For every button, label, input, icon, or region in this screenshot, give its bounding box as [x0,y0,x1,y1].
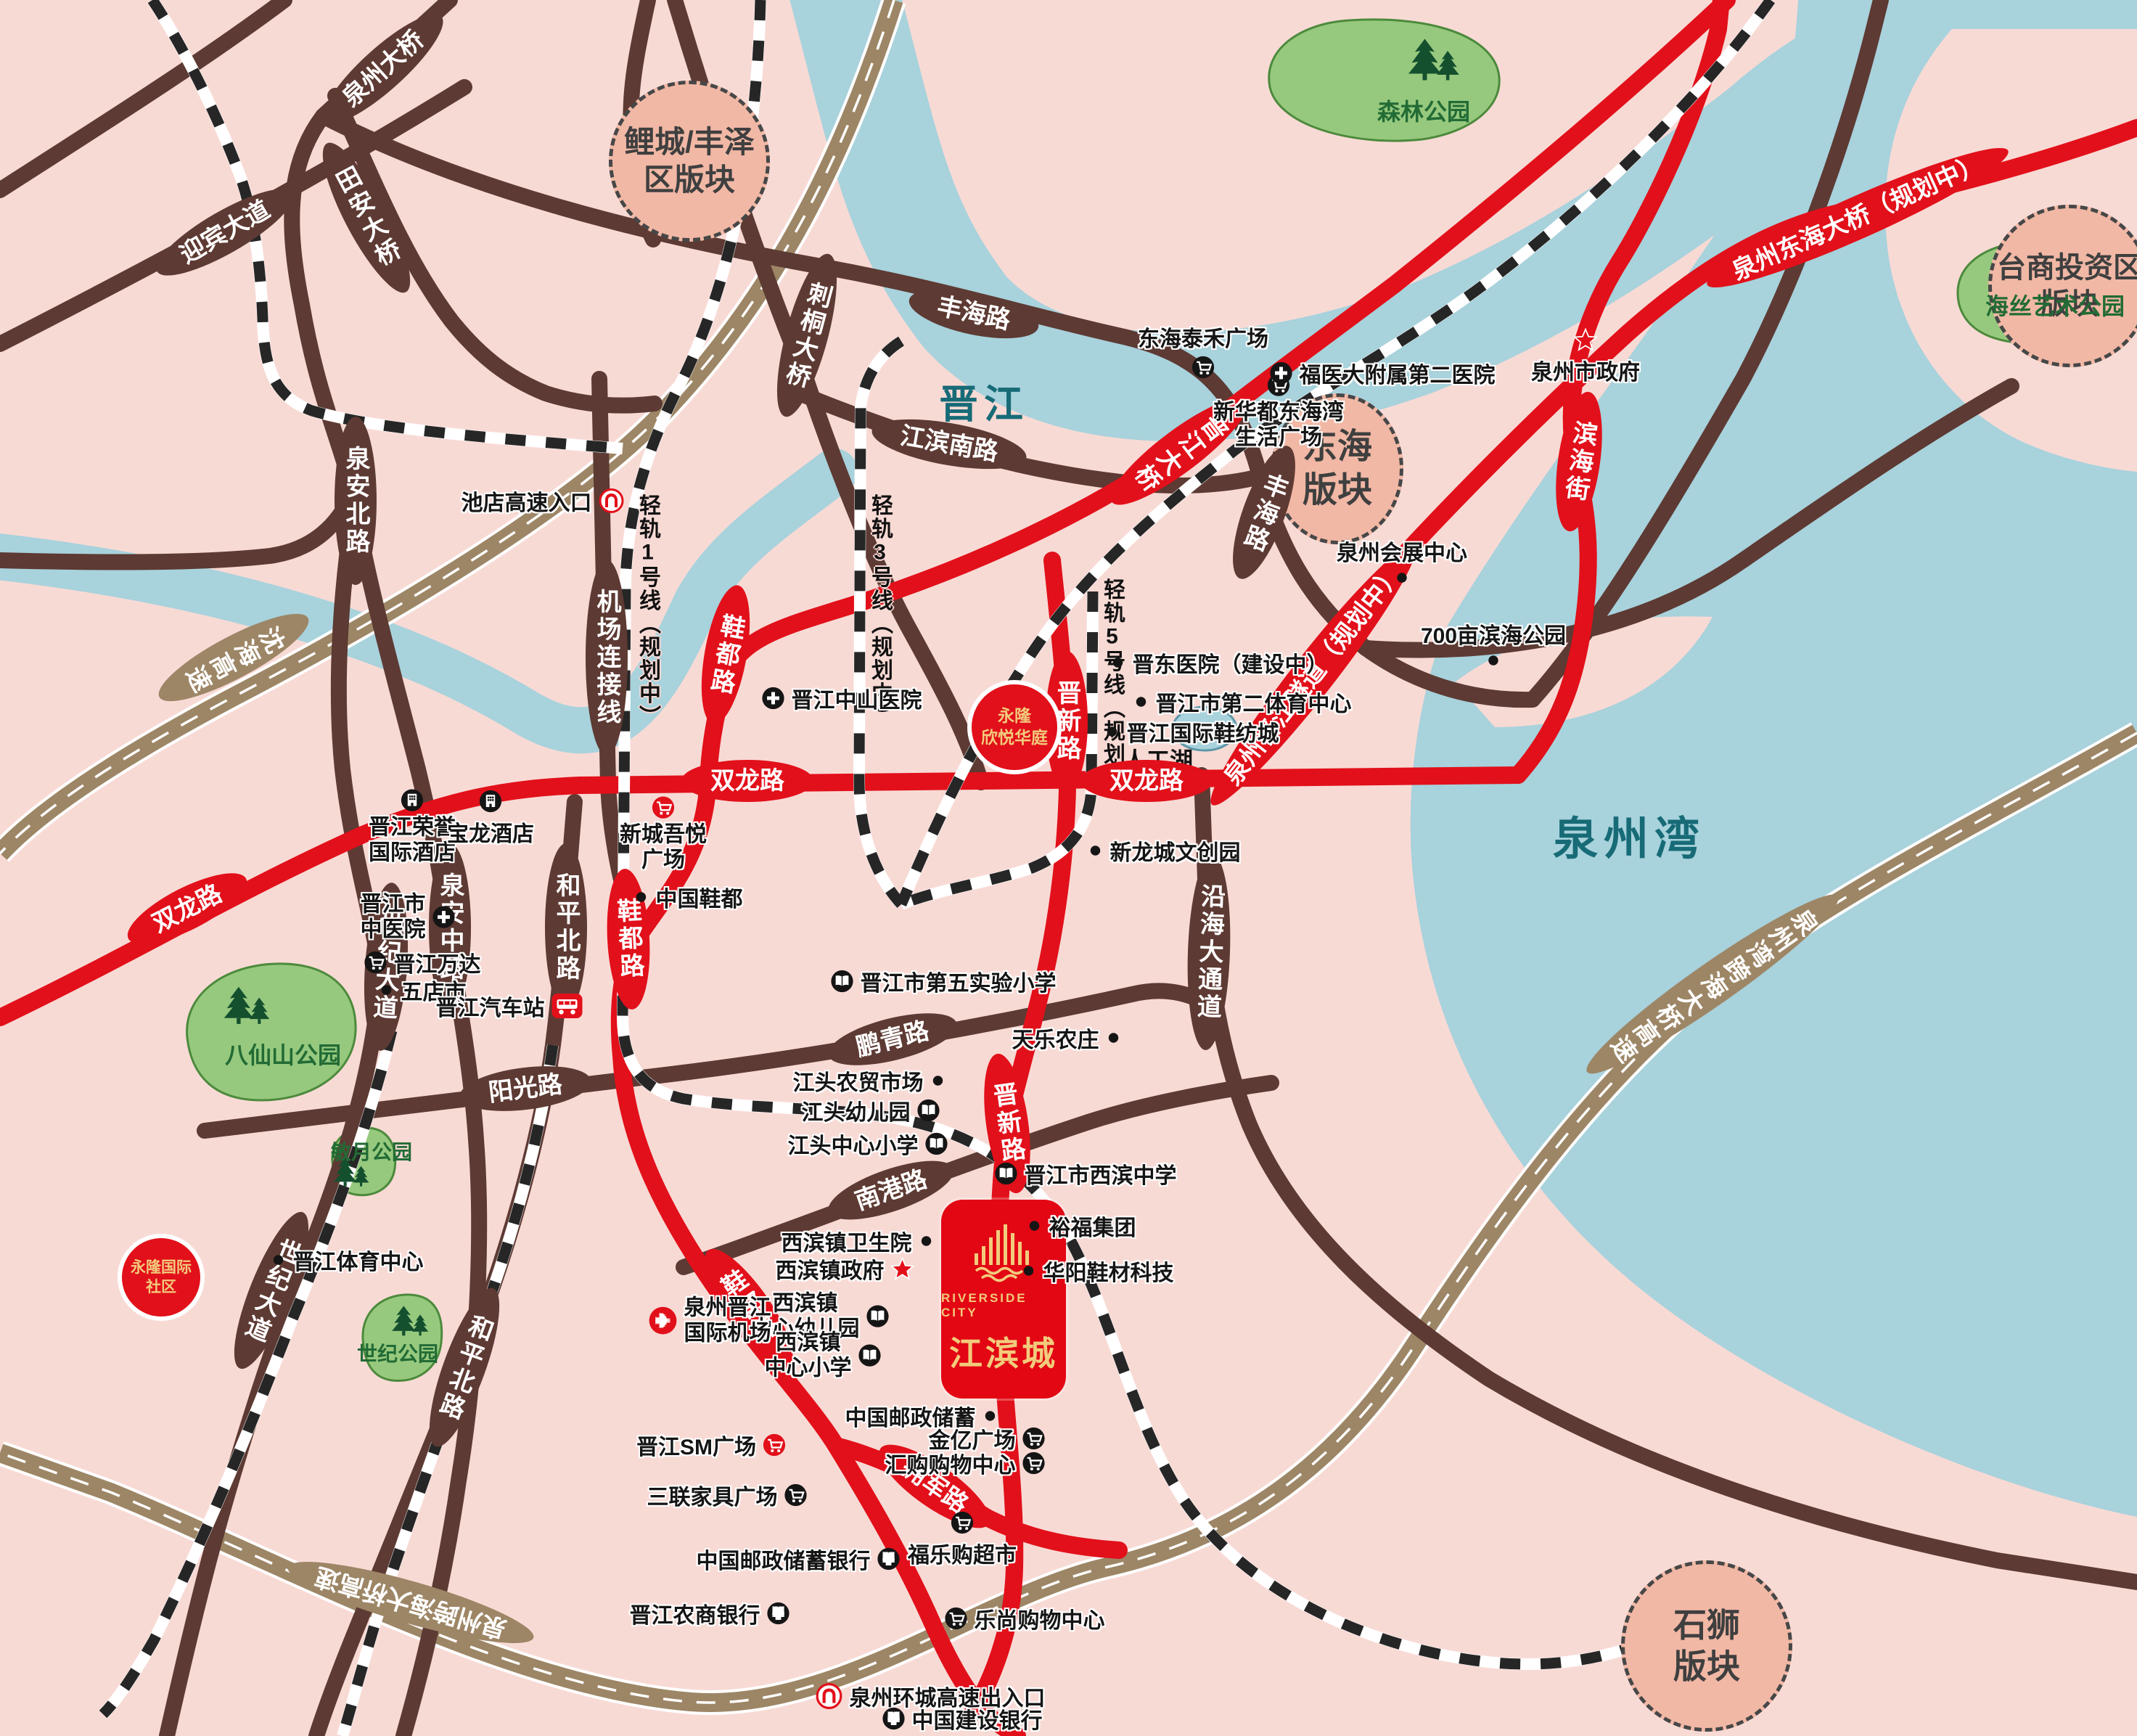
bank-icon [767,1602,790,1625]
poi-convention-label: 泉州会展中心 [1337,535,1467,567]
poi-convention-center: 泉州会展中心 [1337,535,1467,586]
poi-airport-line1: 泉州晋江 [684,1295,771,1321]
poi-postal-bank: 中国邮政储蓄银行 [697,1543,901,1575]
road-badge-quanan-north: 泉安北路 [335,417,377,585]
poi-xibin-gov: 西滨镇政府 [776,1253,914,1285]
poi-chidian-label: 池店高速入口 [462,485,592,517]
poi-quanzhou-gov-label: 泉州市政府 [1531,354,1640,386]
cart-icon [652,796,675,819]
poi-second-sports-label: 晋江市第二体育中心 [1156,686,1352,718]
poi-bus-station-label: 晋江汽车站 [436,990,545,1022]
poi-rural-bank: 晋江农商银行 [630,1597,790,1629]
poi-yufu-group: 裕福集团 [1027,1210,1136,1242]
zone-licheng-line1: 鲤城/丰泽 [624,123,755,162]
dot-icon [930,1073,946,1089]
poi-jiangtou-primary-label: 江头中心小学 [788,1128,919,1160]
cart-icon [1022,1452,1046,1475]
zone-donghai-line2: 版块 [1303,469,1372,512]
zone-shishi: 石狮 版块 [1621,1560,1792,1732]
poi-china-shoe-label: 中国鞋都 [656,881,743,913]
poi-chidian-entrance: 池店高速入口 [462,485,625,517]
poi-airport: 泉州晋江国际机场 [649,1295,771,1347]
poi-jiangtou-kg-label: 江头幼儿园 [802,1094,911,1126]
poi-sports-center-label: 晋江体育中心 [293,1244,424,1276]
poi-huayang-tech: 华阳鞋材科技 [1021,1255,1174,1287]
poi-shoe-textile: 晋江国际鞋纺城 [1104,716,1279,748]
poi-fulegou: 福乐购超市 [908,1511,1017,1569]
poi-bus-station: 晋江汽车站 [436,990,583,1022]
poi-xibin-middle-label: 晋江市西滨中学 [1025,1158,1177,1190]
poi-quanzhou-gov: 泉州市政府 [1531,328,1640,386]
hospital-icon [1270,361,1293,385]
poi-xinlongcheng: 新龙城文创园 [1088,835,1241,867]
cart-icon [1191,356,1215,379]
metro-icon [599,488,625,514]
road-badge-heping-north-1: 和平北路 [545,843,587,1012]
poi-xibin-kg-line1: 西滨镇 [773,1291,838,1317]
dot-icon [271,1252,287,1268]
yonglong-xinyue-marker: 永隆 欣悦华庭 [967,680,1062,774]
poi-second-sports: 晋江市第二体育中心 [1133,686,1352,718]
yonglong-intl-marker: 永隆国际 社区 [118,1234,205,1321]
poi-china-shoe: 中国鞋都 [633,881,743,913]
poi-rongyu-line1: 晋江荣誉 [369,815,456,840]
bus-icon [551,993,583,1019]
dot-icon [1088,843,1104,859]
poi-rongyu-hotel: 晋江荣誉国际酒店 [369,789,456,867]
zone-licheng-line2: 区版块 [644,161,735,200]
poi-fuyida-label: 福医大附属第二医院 [1300,357,1496,389]
dot-icon [919,1233,935,1249]
yonglong-intl-line2: 社区 [146,1277,176,1297]
dot-icon [1485,652,1501,668]
poi-tcm-hospital: 晋江市中医院 [361,892,456,943]
poi-leshang-mall: 乐尚购物中心 [945,1602,1105,1634]
poi-huigou-mall: 汇购购物中心 [885,1447,1046,1479]
poi-xibin-primary-line1: 西滨镇 [776,1330,841,1356]
poi-baolong-hotel: 宝龙酒店 [447,790,534,848]
poi-airport-line2: 国际机场 [684,1321,771,1346]
poi-sm-plaza-label: 晋江SM广场 [636,1429,756,1461]
road-badge-shuanglong-3: 双龙路 [1080,760,1213,802]
hotel-icon [479,790,502,813]
poi-baolong-label: 宝龙酒店 [447,816,534,848]
poi-yufu-label: 裕福集团 [1049,1210,1136,1242]
yonglong-intl-line1: 永隆国际 [131,1258,192,1277]
poi-zhongshan-hospital: 晋江中山医院 [762,682,922,714]
dot-icon [379,982,395,998]
rail-line1-label: 轻轨1号线（规划中） [631,494,663,729]
poi-donghai-taihe-label: 东海泰禾广场 [1138,321,1268,353]
riverside-city-zh: 江滨城 [949,1327,1058,1375]
poi-sanlian: 三联家具广场 [647,1479,808,1511]
dot-icon [1394,570,1410,586]
school-icon [866,1305,890,1328]
poi-leshang-label: 乐尚购物中心 [975,1602,1105,1634]
poi-sanlian-label: 三联家具广场 [647,1479,778,1511]
forest-park-label: 森林公园 [1377,94,1470,127]
minyue-park-label: 敏月公园 [331,1137,412,1166]
hospital-icon [432,906,456,929]
location-map: ¥ ✈ 鲤城/丰泽 区版块 东海 版块 台商投资区 版块 石狮 版块 晋江 泉州… [0,0,2137,1736]
poi-jindong-label: 晋东医院（建设中） [1133,647,1329,679]
poi-sm-plaza: 晋江SM广场 [636,1429,786,1461]
zone-shishi-line2: 版块 [1673,1646,1740,1688]
poi-xibin-gov-label: 西滨镇政府 [776,1253,885,1285]
school-icon [925,1132,948,1155]
road-badge-airport-link: 机场连接线 [586,560,628,756]
school-icon [917,1099,940,1122]
poi-zhongshan-label: 晋江中山医院 [792,682,922,714]
dot-icon [1110,655,1126,671]
dot-icon [1133,694,1149,710]
poi-xibin-middle: 晋江市西滨中学 [995,1158,1177,1190]
cart-icon [364,951,387,974]
poi-fifth-school-label: 晋江市第五实验小学 [861,965,1057,997]
poi-rongyu-line2: 国际酒店 [369,840,456,866]
cart-icon [951,1511,974,1534]
school-icon [858,1344,882,1367]
poi-xinhuadu-line2: 生活广场 [1235,425,1322,451]
school-icon [995,1162,1018,1185]
dot-icon [1104,724,1120,740]
zone-taishang-line1: 台商投资区 [1997,250,2137,286]
topleft-diagonal-road [0,0,284,190]
haisi-art-park-label: 海丝艺术公园 [1985,288,2125,322]
poi-jindong-hospital: 晋东医院（建设中） [1110,647,1329,679]
metro-icon [816,1682,843,1710]
star-icon [891,1257,914,1280]
poi-xibin-primary: 西滨镇中心小学 [765,1330,882,1382]
yonglong-xinyue-line1: 永隆 [998,705,1031,727]
map-canvas [0,0,2137,1736]
bank-icon [882,1707,906,1730]
poi-tcm-line1: 晋江市 [361,892,426,917]
cart-icon [763,1433,786,1457]
poi-jiangtou-kindergarten: 江头幼儿园 [802,1094,940,1126]
dot-icon [1021,1263,1037,1279]
cart-icon [784,1483,808,1507]
poi-jiangtou-market: 江头农贸市场 [793,1065,946,1097]
poi-rural-bank-label: 晋江农商银行 [630,1597,760,1629]
cart-icon [945,1607,968,1630]
zone-licheng-fengze: 鲤城/丰泽 区版块 [609,81,770,242]
jinjiang-river-label: 晋江 [939,372,1029,430]
poi-shoe-textile-label: 晋江国际鞋纺城 [1127,716,1279,748]
poi-tianle-farm: 天乐农庄 [1012,1022,1122,1054]
dot-icon [983,1408,998,1424]
poi-xinhuadu-line1: 新华都东海湾 [1213,400,1344,425]
dot-icon [1027,1218,1043,1234]
star-icon [1574,328,1597,351]
poi-wuyue-line2: 广场 [641,848,685,873]
poi-construction-bank: 中国建设银行 [882,1703,1043,1735]
poi-tcm-line2: 中医院 [361,917,426,943]
poi-jiangtou-market-label: 江头农贸市场 [793,1065,924,1097]
poi-construction-bank-label: 中国建设银行 [912,1703,1043,1735]
century-park-label: 世纪公园 [357,1338,438,1367]
poi-tianle-label: 天乐农庄 [1012,1022,1099,1054]
riverside-city-en: RIVERSIDE CITY [941,1291,1066,1320]
poi-fifth-school: 晋江市第五实验小学 [831,965,1057,997]
hospital-icon [762,687,785,710]
zone-shishi-line1: 石狮 [1673,1605,1740,1647]
poi-jiangtou-primary: 江头中心小学 [788,1128,948,1160]
quanzhou-bay-label: 泉州湾 [1553,802,1705,867]
poi-huigou-label: 汇购购物中心 [885,1447,1016,1479]
poi-fuyida-hospital: 福医大附属第二医院 [1270,357,1496,389]
hotel-icon [401,789,424,812]
poi-fulegou-label: 福乐购超市 [908,1537,1017,1569]
dot-icon [633,889,649,905]
poi-binhai700-label: 700亩滨海公园 [1421,618,1566,650]
poi-postal-bank-label: 中国邮政储蓄银行 [697,1543,871,1575]
poi-donghai-taihe: 东海泰禾广场 [1138,321,1268,379]
baxianshan-park-label: 八仙山公园 [225,1037,341,1070]
baxianshan-park-area [187,964,356,1100]
school-icon [831,970,854,993]
poi-sports-center: 晋江体育中心 [271,1244,424,1276]
poi-binhai-park700: 700亩滨海公园 [1421,618,1566,668]
poi-huayang-label: 华阳鞋材科技 [1043,1255,1174,1287]
poi-wuyue-line1: 新城吾悦 [620,822,707,848]
yonglong-xinyue-line2: 欣悦华庭 [981,727,1048,749]
bank-icon [877,1547,901,1571]
poi-xinlongcheng-label: 新龙城文创园 [1110,835,1241,867]
poi-xibin-primary-line2: 中心小学 [765,1356,852,1381]
poi-wuyue-plaza: 新城吾悦广场 [620,796,707,874]
airport-icon [649,1306,678,1335]
dot-icon [1106,1030,1122,1046]
